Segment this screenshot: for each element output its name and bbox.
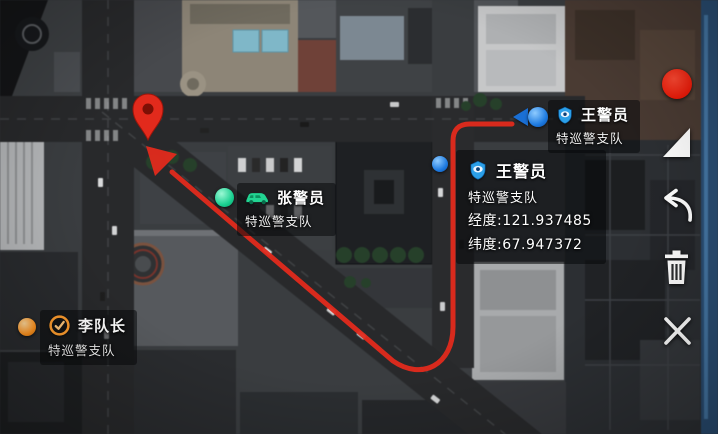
officer-dot-zhang[interactable] [215,188,234,207]
white-triangle-icon [661,126,692,159]
police-badge-icon [468,160,488,180]
trash-icon [662,250,691,285]
officer-dot-wang-selected[interactable] [432,156,448,172]
undo-arrow-icon [655,188,695,224]
officer-unit: 特巡警支队 [245,211,325,230]
officer-name: 张警员 [277,187,325,208]
info-panel-name: 王警员 [496,158,547,182]
close-x-icon [662,316,693,346]
officer-name: 李队长 [78,315,126,336]
officer-label-wang[interactable]: 王警员 特巡警支队 [548,100,640,153]
officer-dot-li[interactable] [18,318,36,336]
info-panel-latitude: 纬度:67.947372 [468,234,592,254]
police-badge-icon [556,106,574,124]
satellite-map[interactable] [0,0,718,434]
corner-expand-button[interactable] [661,126,692,159]
officer-label-li[interactable]: 李队长 特巡警支队 [40,310,137,365]
officer-dot-wang-top[interactable] [528,107,548,127]
info-panel-longitude: 经度:121.937485 [468,210,592,230]
map-view: 王警员 特巡警支队 张警员 特巡警支队 [0,0,718,434]
undo-button[interactable] [655,188,695,224]
compass-check-icon [48,314,71,337]
delete-button[interactable] [662,250,691,285]
patrol-car-icon [245,191,270,205]
map-cursor-icon [513,108,528,126]
officer-unit: 特巡警支队 [556,128,629,147]
officer-unit: 特巡警支队 [48,340,126,359]
officer-name: 王警员 [581,104,629,125]
info-panel-unit: 特巡警支队 [468,187,592,206]
officer-info-panel: 王警员 特巡警支队 经度:121.937485 纬度:67.947372 [456,150,606,264]
officer-label-zhang[interactable]: 张警员 特巡警支队 [237,183,336,236]
record-button[interactable] [662,69,692,99]
close-button[interactable] [662,316,693,346]
